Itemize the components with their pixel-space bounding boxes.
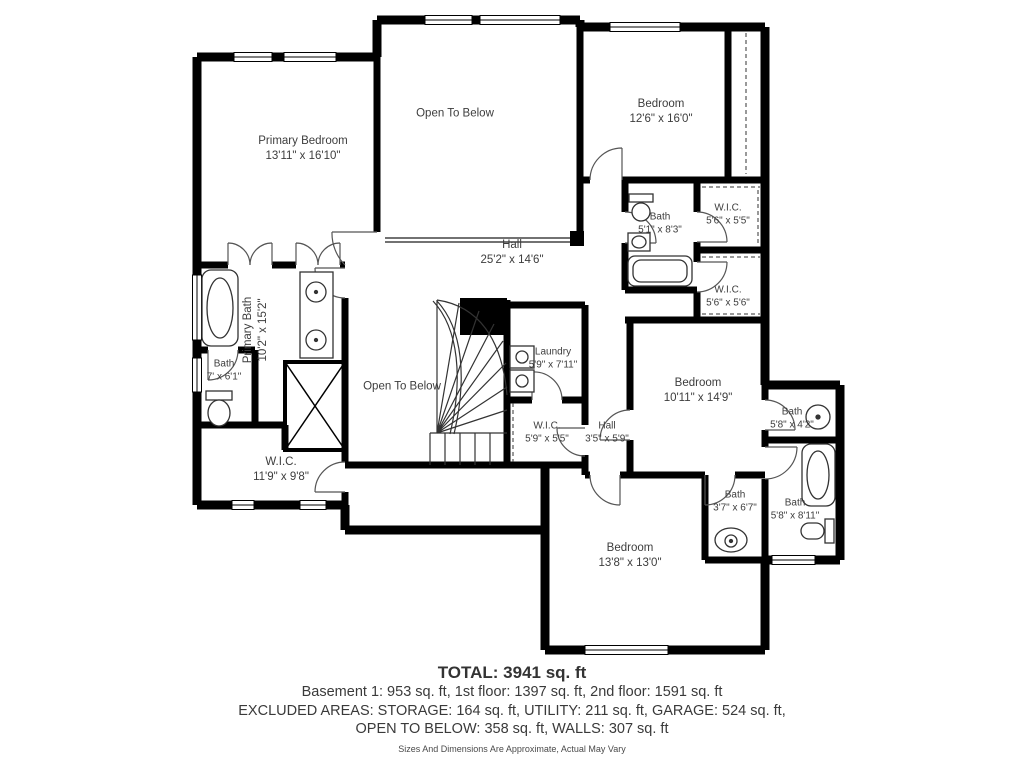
room-name: Bedroom xyxy=(598,541,661,556)
room-name: Bath xyxy=(207,359,242,372)
bathtub-icon xyxy=(628,256,692,286)
room-label-wic-3: W.I.C. 5'9" x 5'5" xyxy=(525,421,569,446)
room-name: Bedroom xyxy=(664,376,733,391)
room-label-wic-4: W.I.C. 11'9" x 9'8" xyxy=(253,455,309,485)
room-label-bedroom-middle: Bedroom 10'11" x 14'9" xyxy=(664,376,733,406)
room-dims: 13'11" x 16'10" xyxy=(258,149,347,164)
room-name: W.I.C. xyxy=(525,421,569,434)
room-label-hall-main: Hall 25'2" x 14'6" xyxy=(480,238,543,268)
summary-disclaimer: Sizes And Dimensions Are Approximate, Ac… xyxy=(0,744,1024,754)
room-dims: 10'11" x 14'9" xyxy=(664,391,733,406)
room-dims: 5'6" x 5'6" xyxy=(706,297,750,310)
room-dims: 25'2" x 14'6" xyxy=(480,253,543,268)
room-dims: 12'6" x 16'0" xyxy=(629,112,692,127)
room-name: Bath xyxy=(713,490,757,503)
room-name: Bath xyxy=(770,407,814,420)
summary-excluded-line2: OPEN TO BELOW: 358 sq. ft, WALLS: 307 sq… xyxy=(0,720,1024,739)
room-dims: 13'8" x 13'0" xyxy=(598,556,661,571)
room-name: Laundry xyxy=(529,347,578,360)
pedestal-sink-icon xyxy=(715,528,747,552)
room-name: Primary Bath xyxy=(241,297,256,363)
summary-floors: Basement 1: 953 sq. ft, 1st floor: 1397 … xyxy=(0,683,1024,702)
room-dims: 5'9" x 5'5" xyxy=(525,433,569,446)
toilet-icon xyxy=(801,519,834,543)
room-label-bedroom-top-right: Bedroom 12'6" x 16'0" xyxy=(629,97,692,127)
room-name: W.I.C. xyxy=(706,285,750,298)
room-dims: 5'8" x 8'11" xyxy=(771,510,820,523)
room-label-laundry: Laundry 5'9" x 7'11" xyxy=(529,347,578,372)
toilet-icon xyxy=(206,391,232,426)
room-label-bath-3: Bath 5'8" x 4'2" xyxy=(770,407,814,432)
summary-excluded-line1: EXCLUDED AREAS: STORAGE: 164 sq. ft, UTI… xyxy=(0,702,1024,721)
room-name: Primary Bedroom xyxy=(258,134,347,149)
room-label-wic-2: W.I.C. 5'6" x 5'6" xyxy=(706,285,750,310)
room-dims: 3'5" x 5'9" xyxy=(585,433,629,446)
floor-summary: TOTAL: 3941 sq. ft Basement 1: 953 sq. f… xyxy=(0,663,1024,754)
room-name: Open To Below xyxy=(416,107,494,122)
room-label-bath-5: Bath 5'8" x 8'11" xyxy=(771,498,820,523)
room-dims: 11'9" x 9'8" xyxy=(253,470,309,485)
room-label-bath-1: Bath 5'1" x 8'3" xyxy=(638,212,682,237)
room-label-wic-1: W.I.C. 5'6" x 5'5" xyxy=(706,203,750,228)
room-label-primary-bath: Primary Bath 10'2" x 15'2" xyxy=(241,297,271,363)
room-name: W.I.C. xyxy=(706,203,750,216)
room-label-open-to-below-center: Open To Below xyxy=(363,380,441,395)
room-dims: 7' x 6'1" xyxy=(207,371,242,384)
room-name: Bath xyxy=(638,212,682,225)
room-label-bath-4: Bath 3'7" x 6'7" xyxy=(713,490,757,515)
room-dims: 5'6" x 5'5" xyxy=(706,215,750,228)
room-dims: 5'1" x 8'3" xyxy=(638,224,682,237)
floorplan-page: Primary Bedroom 13'11" x 16'10" Open To … xyxy=(0,0,1024,768)
room-name: Hall xyxy=(585,421,629,434)
room-name: Hall xyxy=(480,238,543,253)
floorplan-drawing xyxy=(0,0,1024,660)
room-label-bath-2: Bath 7' x 6'1" xyxy=(207,359,242,384)
shaft-x-box xyxy=(285,362,345,450)
room-dims: 3'7" x 6'7" xyxy=(713,502,757,515)
summary-total: TOTAL: 3941 sq. ft xyxy=(0,663,1024,683)
room-name: W.I.C. xyxy=(253,455,309,470)
room-dims: 10'2" x 15'2" xyxy=(256,297,271,363)
room-name: Open To Below xyxy=(363,380,441,395)
vanity-sinks-icon xyxy=(300,272,333,358)
room-name: Bedroom xyxy=(629,97,692,112)
room-dims: 5'8" x 4'2" xyxy=(770,419,814,432)
room-label-hall-small: Hall 3'5" x 5'9" xyxy=(585,421,629,446)
room-name: Bath xyxy=(771,498,820,511)
staircase xyxy=(430,298,507,465)
room-dims: 5'9" x 7'11" xyxy=(529,359,578,372)
room-label-open-to-below-top: Open To Below xyxy=(416,107,494,122)
bathtub-icon xyxy=(202,270,238,346)
outer-walls xyxy=(197,20,840,650)
room-label-bedroom-bottom: Bedroom 13'8" x 13'0" xyxy=(598,541,661,571)
room-label-primary-bedroom: Primary Bedroom 13'11" x 16'10" xyxy=(258,134,347,164)
